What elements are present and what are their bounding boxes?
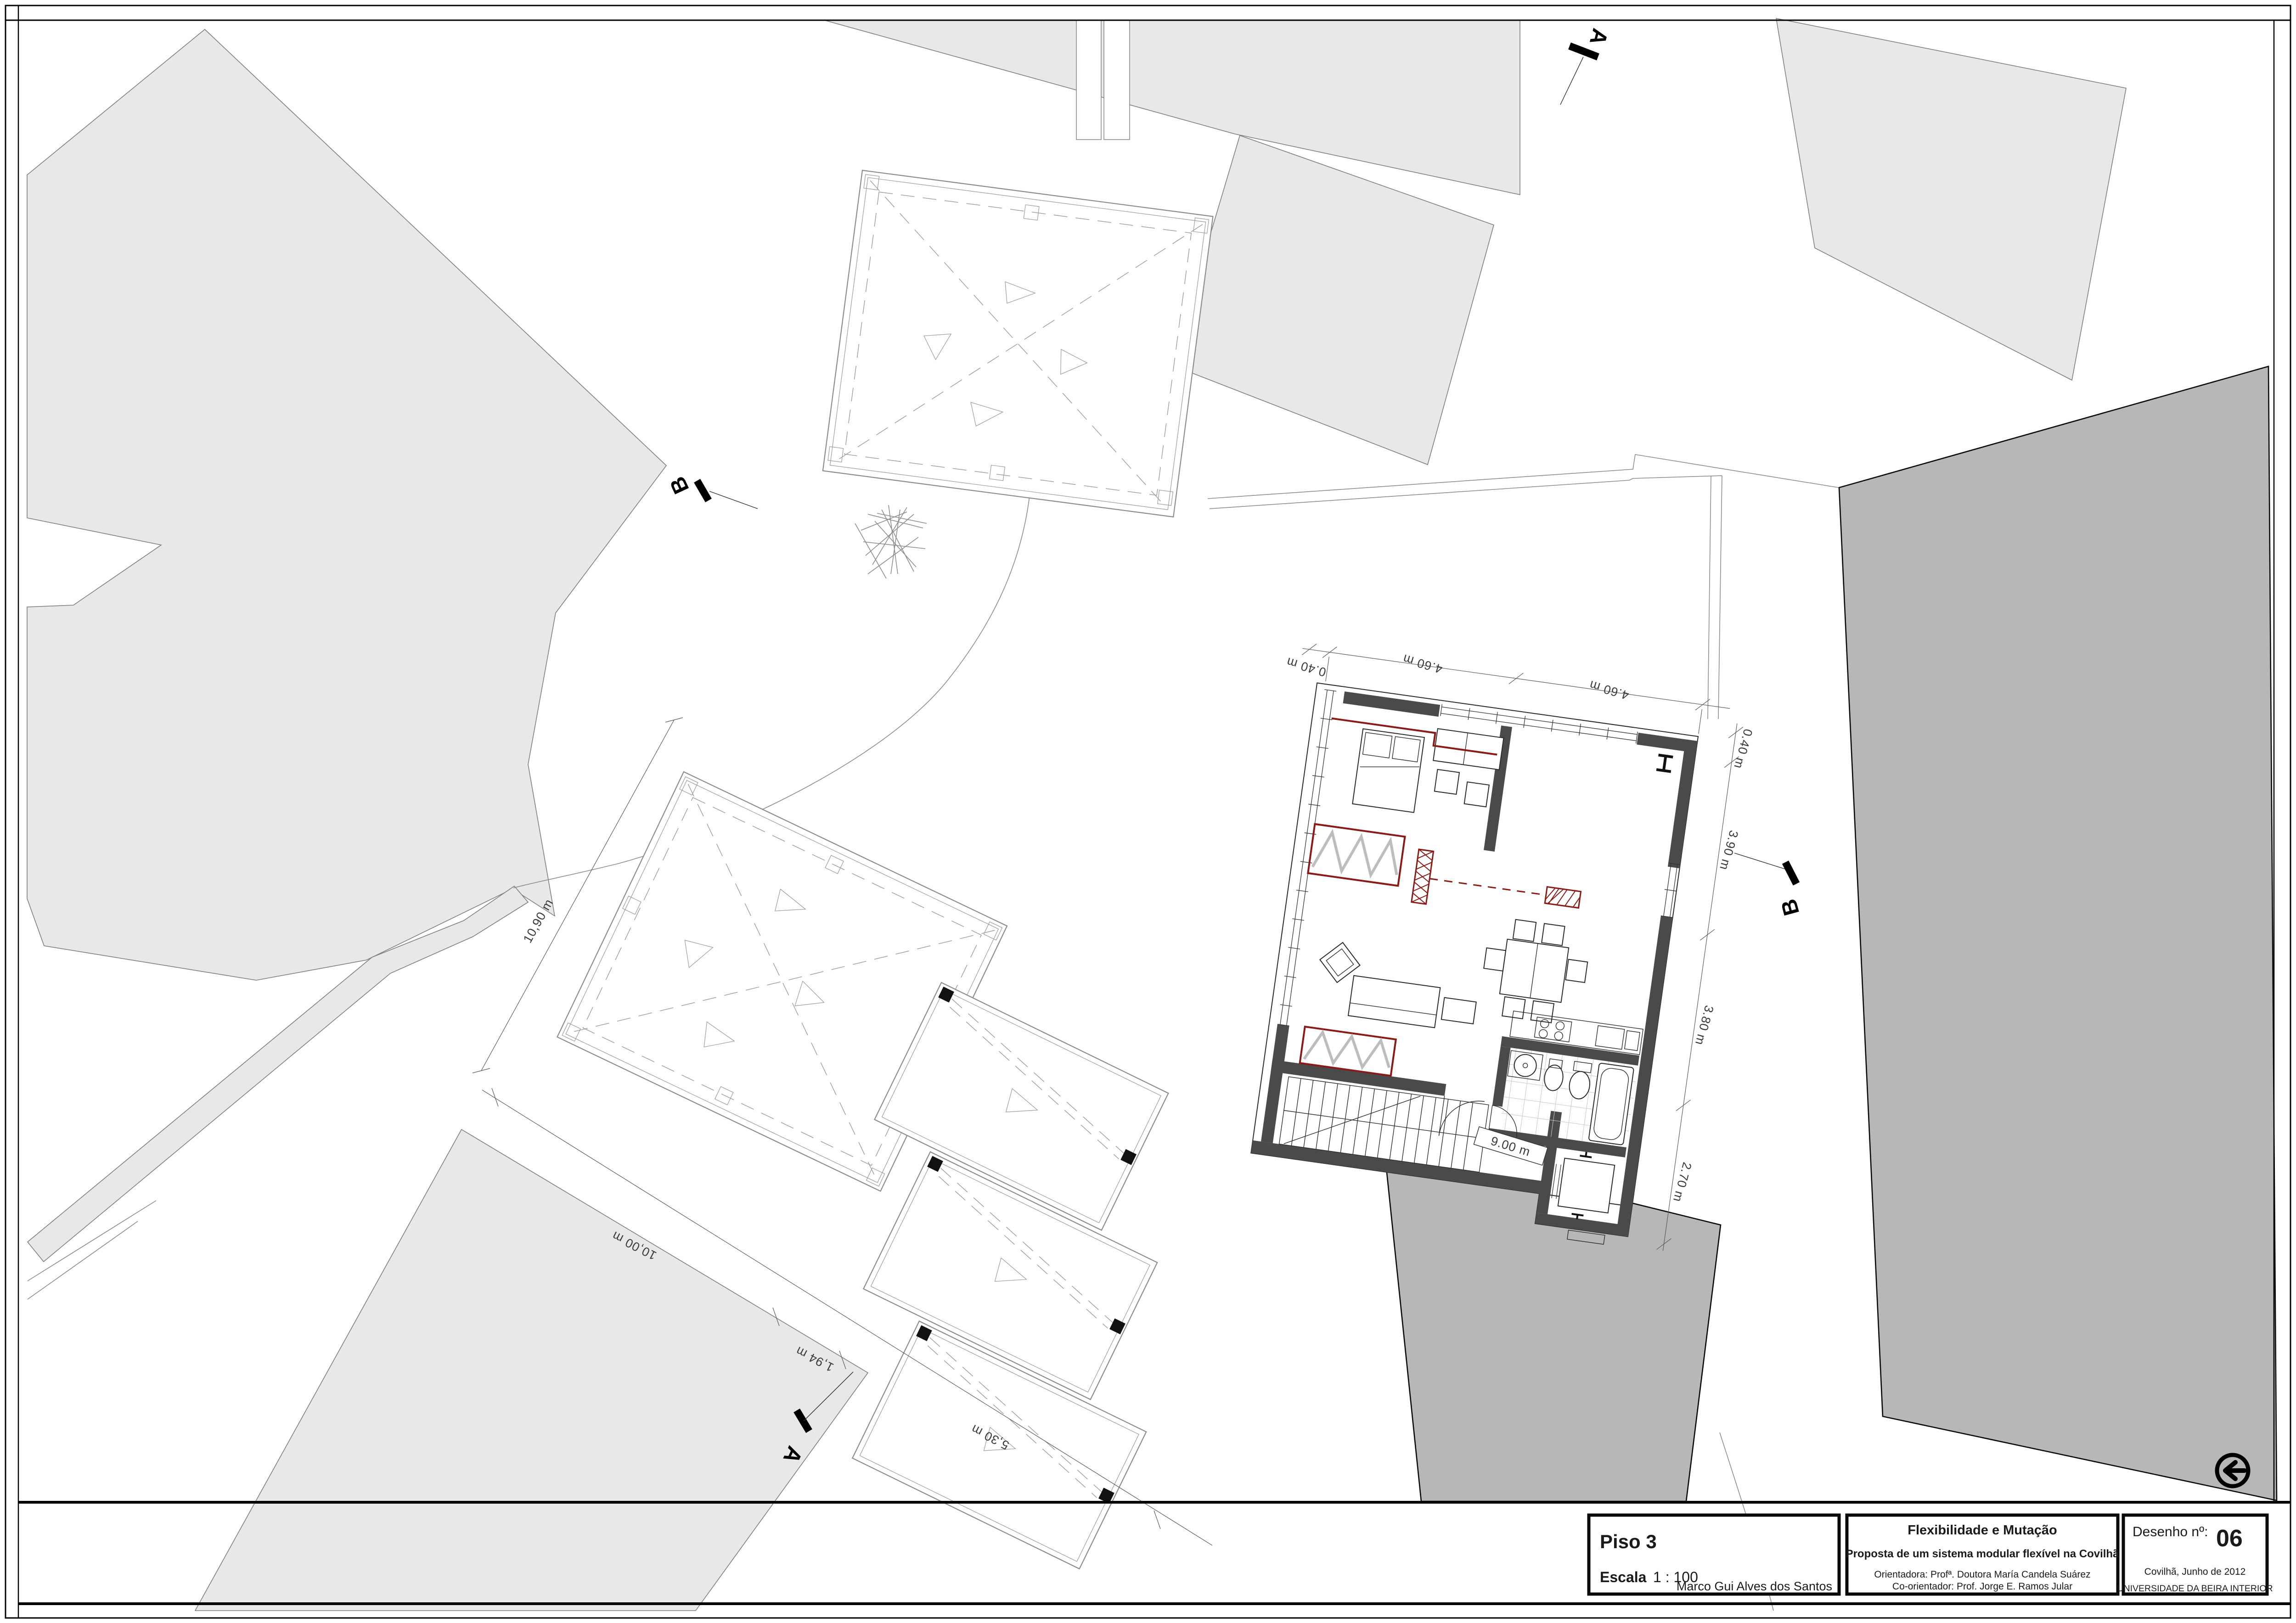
chair xyxy=(1435,769,1459,794)
neighbor-mass-topleft xyxy=(27,29,666,980)
dim-label: 3.90 m xyxy=(1717,829,1741,871)
svg-text:B: B xyxy=(665,473,694,498)
chair xyxy=(1464,782,1489,807)
chair xyxy=(1513,920,1536,942)
coffee-table xyxy=(1441,998,1476,1024)
drawing-no-label: Desenho nº: xyxy=(2133,1524,2208,1539)
author: Marco Gui Alves dos Santos xyxy=(1677,1579,1832,1593)
section-marker-b-right: B xyxy=(1734,853,1804,918)
tree-scribble xyxy=(855,505,927,578)
neighbor-mass-topright xyxy=(1776,18,2126,380)
roof-plan-top xyxy=(823,170,1213,517)
drawing-sheet: 10,90 m 10,00 m 1,94 m 5,30 m xyxy=(0,0,2296,1623)
neighbor-parcel-bottomleft xyxy=(195,1129,868,1611)
chair xyxy=(1502,997,1525,1019)
neighbor-building-right xyxy=(1839,366,2277,1500)
co-advisor: Co-orientador: Prof. Jorge E. Ramos Jula… xyxy=(1892,1581,2072,1592)
title-block: Piso 3 Escala 1 : 100 Marco Gui Alves do… xyxy=(1589,1515,2273,1594)
neighbor-mass-midright xyxy=(1171,135,1494,465)
chair xyxy=(1565,960,1587,983)
dim-label: 0.40 m xyxy=(1731,727,1755,770)
dim-label: 4.60 m xyxy=(1401,651,1444,676)
site-plan-canvas: 10,90 m 10,00 m 1,94 m 5,30 m xyxy=(0,0,2296,1623)
scale-label: Escala xyxy=(1600,1569,1647,1585)
neighbor-mass-topmiddle xyxy=(824,20,1520,195)
bed xyxy=(1352,729,1424,812)
svg-text:B: B xyxy=(1777,896,1804,918)
elevator-cab xyxy=(1558,1158,1615,1213)
dim-label: 4.60 m xyxy=(1587,678,1630,702)
roof-slot xyxy=(1076,20,1101,140)
place-date: Covilhã, Junho de 2012 xyxy=(2144,1567,2246,1577)
boundary-line-upper xyxy=(1208,455,1839,499)
house-plan: 9.00 m 4.60 m 4.60 m 0.40 m xyxy=(1211,635,1759,1255)
floor-title: Piso 3 xyxy=(1600,1531,1657,1552)
section-marker-b-left: B xyxy=(665,473,758,509)
dim-label: 2.70 m xyxy=(1671,1161,1694,1203)
boundary-line-lower xyxy=(1210,476,1722,719)
dim-label: 0.40 m xyxy=(1285,655,1328,679)
chair xyxy=(1484,948,1506,971)
chair xyxy=(1531,1001,1554,1023)
drawing-no: 06 xyxy=(2216,1525,2243,1552)
project-subtitle: Proposta de um sistema modular flexível … xyxy=(1846,1548,2119,1560)
chair xyxy=(1542,923,1564,945)
project-title: Flexibilidade e Mutação xyxy=(1908,1523,2057,1538)
svg-text:A: A xyxy=(1585,26,1612,47)
dim-label: 3.80 m xyxy=(1693,1004,1716,1047)
roof-slot xyxy=(1104,20,1130,140)
university: UNIVERSIDADE DA BEIRA INTERIOR xyxy=(2117,1584,2273,1594)
advisor: Orientadora: Profª. Doutora María Candel… xyxy=(1874,1569,2090,1580)
section-marker-a-top: A xyxy=(1560,26,1612,105)
